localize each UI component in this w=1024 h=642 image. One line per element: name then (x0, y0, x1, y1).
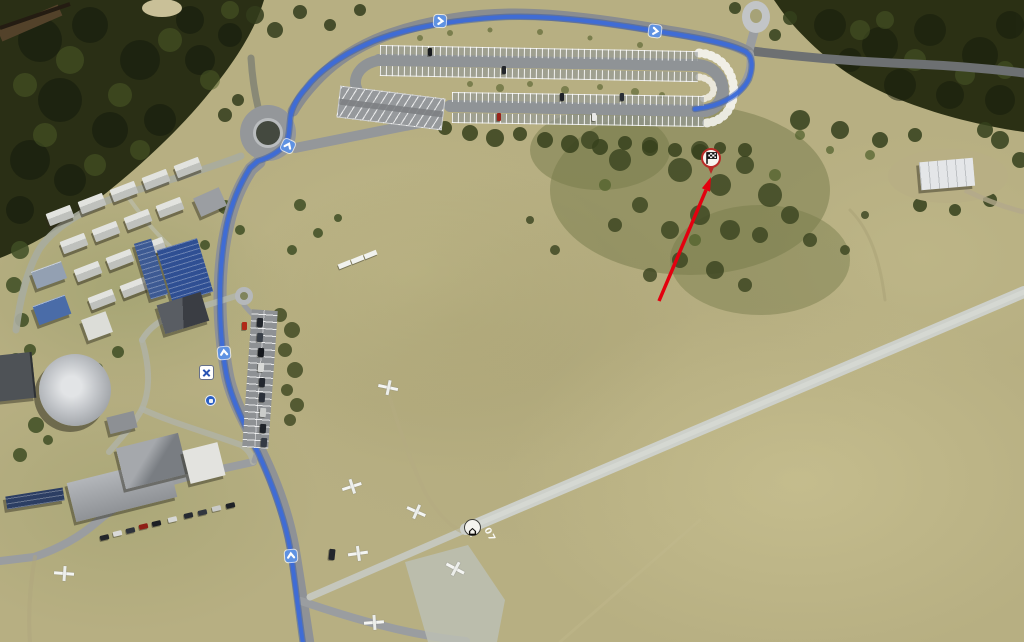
parked-car (592, 113, 596, 121)
rect-building-west (0, 352, 36, 402)
route-chevron-icon (285, 550, 298, 563)
parked-car (258, 363, 265, 372)
checkered-flag-icon (703, 150, 719, 166)
airfield (310, 210, 1024, 642)
parked-car (497, 113, 501, 121)
parked-car (259, 393, 266, 402)
parked-car (560, 93, 564, 101)
parked-car (259, 378, 266, 387)
mini-roundabout (235, 287, 253, 305)
glider-aircraft (53, 565, 74, 582)
hedge-along-road (273, 308, 304, 426)
house-poi-icon[interactable]: ⌂ (464, 519, 481, 536)
parked-car (428, 48, 432, 56)
route-chevron-icon (434, 15, 447, 28)
parked-car (260, 408, 267, 417)
parked-car (620, 93, 624, 101)
round-building (39, 354, 111, 426)
parked-car (328, 549, 335, 561)
parked-car (502, 66, 506, 74)
destination-pin[interactable] (701, 148, 721, 178)
parked-car (257, 318, 264, 327)
hangar-building (919, 158, 975, 191)
parked-car (261, 438, 268, 447)
route-chevron-icon (217, 346, 230, 359)
pin-head (701, 148, 721, 168)
glider-aircraft (363, 614, 384, 631)
info-poi-icon[interactable] (205, 395, 216, 406)
turnaround-loop (742, 1, 770, 33)
crossing-poi-icon[interactable] (200, 366, 213, 379)
parked-car (242, 322, 247, 330)
satellite-map-canvas[interactable]: ⌂ 07 (0, 0, 1024, 642)
parked-car (258, 348, 265, 357)
parked-car (257, 333, 264, 342)
route-chevron-icon (648, 24, 661, 37)
house-icon: ⌂ (468, 524, 477, 538)
glider-aircraft (347, 545, 369, 564)
scrub-center (526, 105, 875, 315)
parked-car (260, 424, 267, 433)
